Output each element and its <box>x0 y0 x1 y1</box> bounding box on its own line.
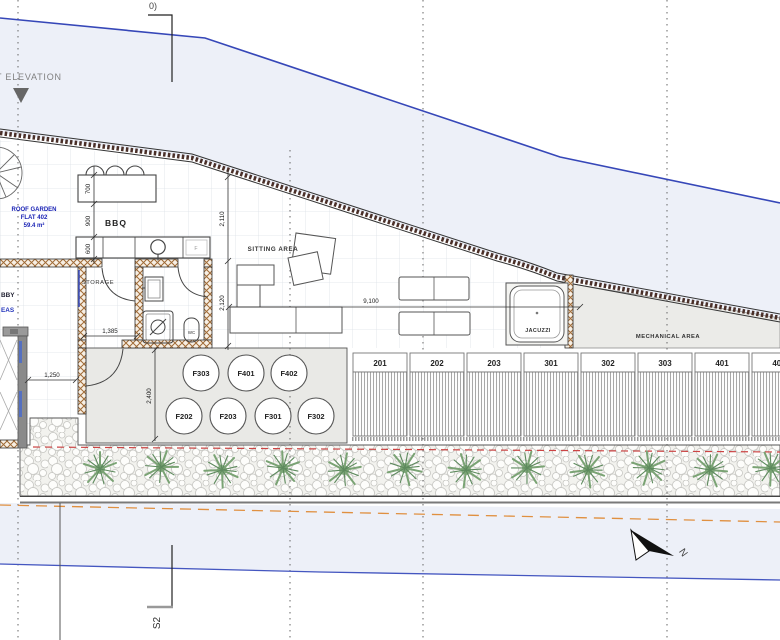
mechanical-area-label: MECHANICAL AREA <box>636 334 700 340</box>
sofa-bottom <box>230 307 342 333</box>
dim-2120: 2,120 <box>219 295 226 311</box>
ac-unit-number: 202 <box>430 359 444 368</box>
svg-text:F202: F202 <box>175 412 192 421</box>
ac-unit: 203 <box>466 353 522 439</box>
ac-unit-number: 402 <box>772 359 780 368</box>
sofa-top <box>237 265 274 285</box>
fridge-label: F <box>194 246 197 252</box>
svg-text:F302: F302 <box>307 412 324 421</box>
shaft-circle: F402 <box>271 355 307 391</box>
roof-garden-name: ROOF GARDEN <box>12 207 57 213</box>
section-top-label: 0) <box>149 1 157 11</box>
ac-unit: 402 <box>751 353 780 439</box>
ac-unit-number: 401 <box>715 359 729 368</box>
shaft-circle: F303 <box>183 355 219 391</box>
dim-1250: 1,250 <box>44 372 60 379</box>
elevation-label: T ELEVATION <box>0 72 62 82</box>
ac-unit-number: 303 <box>658 359 672 368</box>
ac-unit: 401 <box>694 353 750 439</box>
sitting-area-label: SITTING AREA <box>248 246 299 253</box>
ac-unit: 302 <box>580 353 636 439</box>
lower-setback-fill <box>0 503 780 580</box>
shaft-circle: F302 <box>298 398 334 434</box>
dim-700: 700 <box>85 183 92 194</box>
dim-9100: 9,100 <box>363 298 379 305</box>
svg-text:F203: F203 <box>219 412 236 421</box>
ac-unit: 301 <box>523 353 579 439</box>
floor-plan-canvas: 201 202 203 301 302 <box>0 0 780 640</box>
ac-unit: 202 <box>409 353 465 439</box>
dim-1385: 1,385 <box>102 328 118 335</box>
bbq-label: BBQ <box>105 218 127 228</box>
svg-text:F301: F301 <box>264 412 281 421</box>
ac-unit-number: 301 <box>544 359 558 368</box>
ac-unit-number: 201 <box>373 359 387 368</box>
coffee-table-b <box>288 252 323 286</box>
jacuzzi-label: JACUZZI <box>525 328 551 334</box>
dim-2400: 2,400 <box>146 388 153 404</box>
shaft-circle: F401 <box>228 355 264 391</box>
sofa-side <box>237 285 260 307</box>
ac-unit: 303 <box>637 353 693 439</box>
jacuzzi-unit <box>506 283 568 345</box>
shaft-circle: F301 <box>255 398 291 434</box>
sun-lounger-2 <box>399 312 470 335</box>
jacuzzi-drain-dot <box>536 312 539 315</box>
svg-text:F303: F303 <box>192 369 209 378</box>
site-fills <box>0 18 780 580</box>
svg-text:F401: F401 <box>237 369 254 378</box>
shaft-diagonals <box>0 340 17 430</box>
lobby-label-partial: BBY <box>1 292 15 299</box>
dim-2110: 2,110 <box>219 211 226 227</box>
ac-units-row: 201 202 203 301 302 <box>352 353 780 439</box>
shaft-circle: F202 <box>166 398 202 434</box>
wc-label: WC <box>188 330 195 335</box>
shaft-circle: F203 <box>210 398 246 434</box>
roof-garden-area: 59.4 m² <box>24 222 45 229</box>
dim-900: 900 <box>85 215 92 226</box>
eas-label-partial: EAS <box>1 307 15 314</box>
section-bottom-label: S2 <box>152 616 163 629</box>
ac-unit: 201 <box>352 353 408 439</box>
svg-text:F402: F402 <box>280 369 297 378</box>
ac-unit-number: 203 <box>487 359 501 368</box>
ac-unit-number: 302 <box>601 359 615 368</box>
roof-garden-flat: FLAT 402 <box>21 215 48 221</box>
storage-label: STORAGE <box>82 280 114 286</box>
roof-plan-drawing: 201 202 203 301 302 <box>0 0 780 640</box>
dim-600: 600 <box>85 243 92 254</box>
